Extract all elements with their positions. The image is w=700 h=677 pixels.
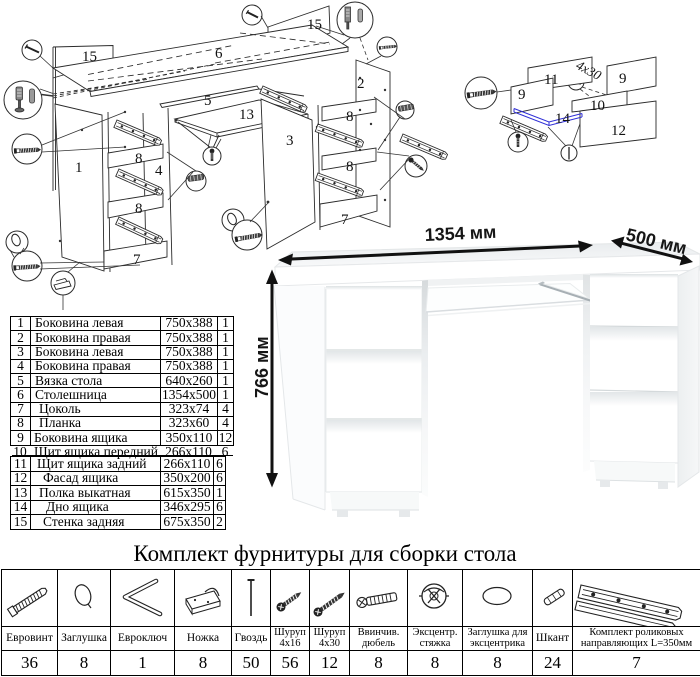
svg-text:11: 11 — [544, 72, 558, 88]
svg-text:3: 3 — [286, 133, 294, 149]
svg-text:4: 4 — [155, 163, 163, 179]
svg-text:1: 1 — [75, 160, 83, 176]
svg-text:9: 9 — [619, 71, 627, 87]
svg-text:12: 12 — [611, 123, 626, 139]
svg-text:13: 13 — [239, 107, 254, 123]
svg-text:15: 15 — [307, 17, 322, 33]
svg-text:7: 7 — [341, 212, 349, 228]
svg-text:8: 8 — [135, 201, 143, 217]
svg-text:10: 10 — [590, 98, 605, 114]
svg-text:15: 15 — [82, 49, 97, 65]
svg-text:1354 мм: 1354 мм — [424, 222, 497, 245]
svg-text:7: 7 — [133, 252, 141, 268]
svg-text:9: 9 — [518, 87, 526, 103]
svg-text:766 мм: 766 мм — [252, 336, 272, 398]
svg-text:8: 8 — [346, 109, 354, 125]
svg-text:8: 8 — [346, 159, 354, 175]
svg-text:8: 8 — [135, 151, 143, 167]
svg-text:14: 14 — [555, 111, 571, 127]
svg-text:5: 5 — [204, 93, 212, 109]
svg-text:2: 2 — [357, 76, 365, 92]
svg-text:6: 6 — [215, 46, 223, 62]
